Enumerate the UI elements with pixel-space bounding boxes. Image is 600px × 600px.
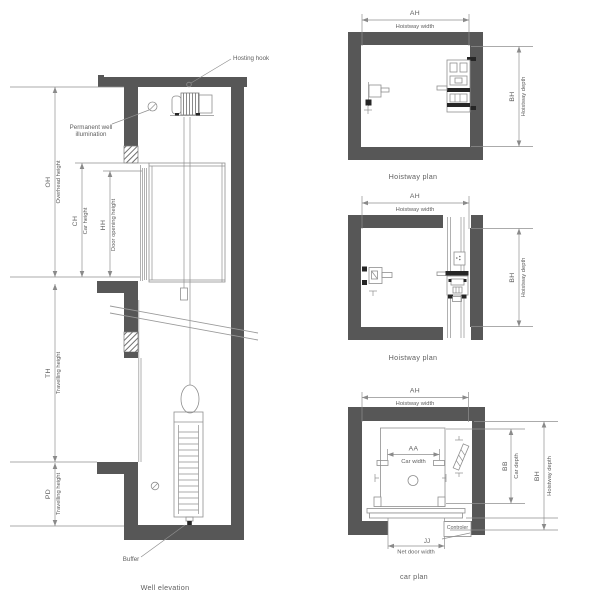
- car-width-name: Car width: [401, 459, 425, 465]
- hatch-block-2: [124, 332, 138, 352]
- elevation-caption: Well elevation: [141, 583, 190, 592]
- right-wall: [231, 77, 244, 540]
- dimension-th: TH Travelling height: [45, 284, 62, 462]
- car-plan-car: [374, 428, 446, 507]
- buffer-label: Buffer: [123, 556, 139, 563]
- left-wall-stub: [124, 352, 138, 358]
- drawing-canvas: Hosting hook Permanent well illumination: [0, 0, 600, 600]
- dimension-pd: PD Travelling height: [45, 463, 62, 526]
- dimension-oh: OH Overhead height: [45, 87, 62, 277]
- dimension-hh: HH Door opening height: [100, 171, 117, 277]
- dim-ch-code: CH: [72, 216, 79, 227]
- dim-pd-name: Travelling height: [56, 472, 62, 515]
- hoist-ropes: [184, 117, 190, 385]
- pit-lamp: [151, 482, 159, 490]
- car-depth-name: Car depth: [514, 453, 520, 478]
- floor-slab-2-web: [124, 462, 138, 477]
- car-width-code: AA: [409, 446, 419, 453]
- car-plan-hoistway-width-name: Hoistway width: [396, 401, 435, 407]
- car-plan-hoistway-depth-code: BH: [534, 471, 541, 481]
- elevator-drawing-svg: Hosting hook Permanent well illumination: [0, 0, 600, 600]
- plan-middle-depth-name: Hoistway depth: [521, 258, 527, 298]
- plan-middle-caption: Hoistway plan: [389, 353, 438, 362]
- plan-top-depth-code: BH: [509, 91, 516, 101]
- machine-sheave: [181, 93, 199, 115]
- well-elevation-drawing: Hosting hook Permanent well illumination: [10, 55, 270, 592]
- dim-oh-name: Overhead height: [56, 160, 62, 203]
- car-outline: [381, 428, 446, 507]
- plan-middle-depth-code: BH: [509, 272, 516, 282]
- illumination-label-line1: Permanent well: [70, 124, 113, 131]
- plan-middle-width-code: AH: [410, 193, 420, 200]
- car-plan-hoistway-depth-name: Hoistway depth: [547, 456, 553, 496]
- car-depth-code: BB: [502, 461, 509, 471]
- hoisting-hook-label: Hosting hook: [233, 55, 270, 62]
- left-wall-b: [124, 298, 138, 332]
- top-wall: [103, 77, 247, 87]
- car-floor-mark: [408, 476, 418, 486]
- car-plan-caption: car plan: [400, 572, 428, 581]
- dimension-ch: CH Car height: [72, 163, 89, 277]
- dim-oh-code: OH: [45, 177, 52, 188]
- dim-hh-name: Door opening height: [111, 199, 117, 252]
- plan-top-width-code: AH: [410, 10, 420, 17]
- hoistway-plan-middle: AH Hoistway width BH Hoistway depth Hois…: [348, 193, 533, 362]
- pit-floor: [124, 525, 244, 540]
- hatch-block-1: [124, 146, 138, 163]
- floor-slab-1-web: [124, 281, 138, 298]
- car-plan-hoistway-width-code: AH: [410, 388, 420, 395]
- dim-pd-code: PD: [45, 489, 52, 499]
- car-plan: Controler AH Hoistway width AA Car width…: [348, 388, 558, 582]
- plan-middle-width-name: Hoistway width: [396, 207, 435, 213]
- safety-device: [453, 436, 469, 477]
- counterweight: [174, 385, 203, 517]
- hoistway-plan-top: AH Hoistway width BH Hoistway depth Hois…: [348, 10, 533, 181]
- dim-th-name: Travelling height: [56, 351, 62, 394]
- illumination-lamp: Permanent well illumination: [70, 102, 157, 138]
- door-width-code: JJ: [424, 538, 430, 545]
- rail-joint-box: [454, 252, 465, 265]
- car-elevation: [145, 163, 226, 300]
- dim-hh-code: HH: [100, 220, 107, 231]
- illumination-label-line2: illumination: [76, 131, 108, 138]
- plan-top-width-name: Hoistway width: [396, 24, 435, 30]
- traction-machine: [170, 93, 214, 116]
- dim-ch-name: Car height: [83, 207, 89, 234]
- door-width-name: Net door width: [397, 550, 434, 556]
- counterweight-rungs: [179, 432, 199, 510]
- dim-th-code: TH: [45, 368, 52, 378]
- rope-hitch: [181, 288, 188, 300]
- plan-top-depth-name: Hoistway depth: [521, 77, 527, 117]
- left-wall-d: [124, 477, 138, 525]
- landing-doors: [139, 165, 143, 462]
- plan-top-caption: Hoistway plan: [389, 172, 438, 181]
